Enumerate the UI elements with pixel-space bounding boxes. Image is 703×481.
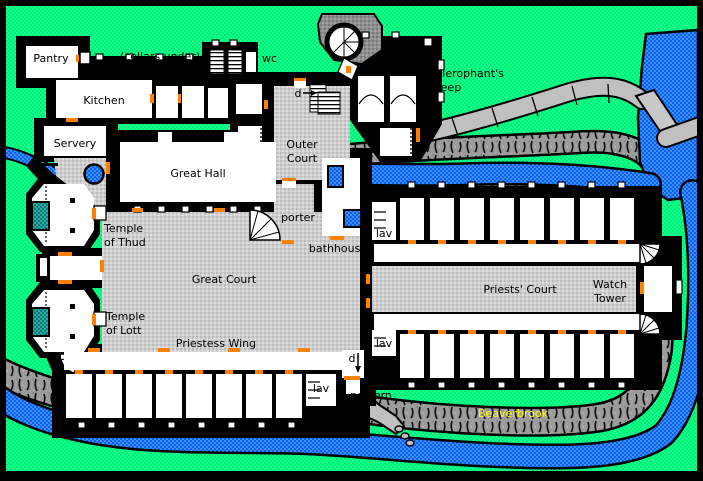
- stairs-icon: [318, 92, 340, 114]
- keep-chamber: [358, 76, 384, 122]
- label-hierophants-keep-2: Keep: [434, 81, 461, 94]
- label-door-lower: d: [349, 352, 356, 365]
- label-porter: porter: [281, 211, 315, 224]
- door-marker: [366, 298, 370, 308]
- door-marker: [58, 280, 72, 284]
- label-kitchen: Kitchen: [83, 94, 124, 107]
- label-temple-lott-1: Temple: [105, 310, 145, 323]
- store-room: [208, 88, 228, 118]
- store-room: [156, 86, 178, 118]
- door-marker: [282, 178, 296, 181]
- keep-chamber: [390, 76, 416, 122]
- door-marker: [76, 55, 79, 62]
- door-marker: [178, 94, 181, 103]
- label-pantry: Pantry: [33, 52, 69, 65]
- altar-icon: [32, 202, 49, 230]
- door-marker: [150, 94, 154, 103]
- door-marker: [100, 260, 104, 272]
- label-watch-tower-2: Tower: [593, 292, 626, 305]
- door-marker: [416, 128, 420, 142]
- north-corridor: [374, 244, 642, 262]
- keep-south-room: [380, 128, 412, 156]
- door-marker: [214, 208, 225, 212]
- label-great-court: Great Court: [192, 273, 257, 286]
- label-cellars-under: (cellars under): [120, 50, 200, 63]
- watch-tower-room: [644, 266, 672, 312]
- wc-room: [246, 52, 256, 72]
- stairs-icon: [228, 50, 242, 74]
- label-temple-thud-1: Temple: [103, 222, 143, 235]
- door-marker: [640, 282, 644, 294]
- label-wc: wc: [262, 52, 277, 65]
- priests-south-wing: [372, 314, 642, 388]
- floor-plan-page: Pantry (cellars under) wc Hierophant's K…: [0, 0, 703, 481]
- label-priests-court: Priests' Court: [483, 283, 557, 296]
- door-marker: [366, 274, 370, 284]
- label-servery: Servery: [54, 137, 97, 150]
- label-lav-south: lav: [313, 382, 330, 395]
- door-marker: [282, 240, 294, 244]
- east-room: [236, 84, 262, 114]
- door-marker: [346, 66, 351, 73]
- bath-pool-icon: [344, 210, 361, 227]
- store-room: [182, 86, 204, 118]
- label-great-hall: Great Hall: [170, 167, 225, 180]
- far-path: [666, 126, 700, 138]
- door-marker: [66, 118, 78, 122]
- label-watch-tower-1: Watch: [593, 278, 627, 291]
- priestess-wing: [64, 348, 344, 428]
- label-door-upper: d: [295, 87, 302, 100]
- bathhouse: [322, 158, 361, 240]
- door-marker: [92, 314, 96, 325]
- door-marker: [344, 376, 360, 380]
- door-marker: [92, 208, 96, 219]
- well-icon: [85, 165, 104, 184]
- label-lav-middle: lav: [376, 337, 393, 350]
- label-temple-lott-2: of Lott: [106, 324, 142, 337]
- door-marker: [58, 252, 72, 256]
- label-lav-north: lav: [376, 227, 393, 240]
- door-marker: [132, 208, 143, 212]
- label-postern: postern: [350, 389, 392, 402]
- label-outer-court-2: Court: [287, 152, 318, 165]
- door-marker: [330, 236, 344, 240]
- corridor-room: [50, 256, 102, 280]
- door-marker: [264, 100, 268, 109]
- floor-plan-map: Pantry (cellars under) wc Hierophant's K…: [0, 0, 703, 481]
- label-beaverbrook: Beaverbrook: [478, 407, 549, 420]
- label-temple-thud-2: of Thud: [104, 236, 146, 249]
- label-priestess-wing: Priestess Wing: [176, 337, 256, 350]
- door-marker: [294, 78, 306, 81]
- stairs-icon: [210, 50, 224, 74]
- pantry-door: [80, 52, 90, 64]
- porter-gate-gap: [282, 180, 296, 188]
- label-bathhouse: bathhouse: [309, 242, 367, 255]
- river-channel: [340, 173, 650, 184]
- kitchen-block: [56, 80, 228, 122]
- door-marker: [106, 162, 110, 174]
- priestess-corridor: [64, 352, 344, 370]
- bath-pool-icon: [328, 166, 343, 187]
- label-hierophants-keep-1: Hierophant's: [434, 67, 504, 80]
- altar-icon: [32, 308, 49, 336]
- south-corridor: [374, 314, 642, 330]
- map-border-bottom: [0, 471, 703, 481]
- label-outer-court-1: Outer: [286, 138, 318, 151]
